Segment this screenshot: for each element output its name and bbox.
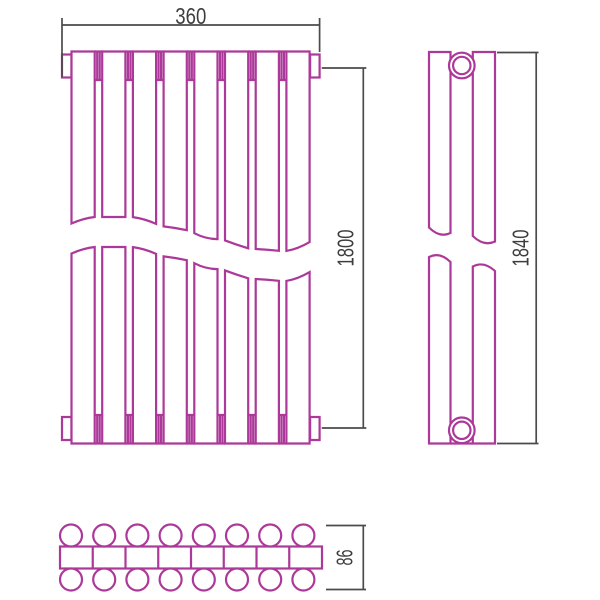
collector-joint [248, 52, 256, 444]
front-tube-upper [225, 52, 248, 249]
collector-end-tab [62, 55, 72, 78]
side-tube-lower [429, 255, 451, 443]
plan-tube-circle [160, 525, 182, 547]
front-tube-lower [164, 256, 187, 443]
front-tube-upper [256, 52, 279, 251]
dim-depth: 86 [326, 526, 366, 590]
plan-tube-circle [226, 569, 248, 591]
front-tube-upper [286, 52, 309, 251]
plan-tube-circle [292, 569, 314, 591]
plan-view [60, 525, 322, 591]
dim-depth-value: 86 [332, 550, 358, 566]
plan-tube-circle [259, 525, 281, 547]
front-tube-lower [133, 247, 156, 443]
collector-end-tab [310, 417, 320, 440]
dim-front-height: 1800 [322, 68, 367, 428]
front-tube-upper [164, 52, 187, 231]
front-tube-upper [72, 52, 95, 224]
front-tube-lower [194, 263, 217, 443]
dim-side-height-value: 1840 [508, 230, 534, 267]
front-tube-upper [102, 52, 125, 218]
side-view [429, 52, 495, 444]
front-tube-lower [72, 247, 95, 443]
front-tube-lower [225, 270, 248, 443]
front-tube-upper [133, 52, 156, 224]
side-tube-upper [473, 52, 495, 243]
plan-tube-circle [60, 569, 82, 591]
drawing-canvas: 360 1800 1840 86 [0, 0, 600, 600]
plan-tube-circle [93, 525, 115, 547]
plan-tube-circle [160, 569, 182, 591]
plan-tube-circle [126, 569, 148, 591]
radiator-drawing-svg: 360 1800 1840 86 [0, 0, 600, 600]
plan-tube-circle [292, 525, 314, 547]
front-tube-lower [286, 272, 309, 443]
collector-joint [187, 52, 195, 444]
plan-tube-circle [193, 525, 215, 547]
plan-tube-circle [193, 569, 215, 591]
plan-tube-circle [259, 569, 281, 591]
collector-joint [125, 52, 132, 444]
collector-joint [156, 52, 164, 444]
dim-front-width-value: 360 [175, 3, 206, 29]
collector-joint [279, 52, 287, 444]
plan-tube-circle [60, 525, 82, 547]
collector-end-tab [310, 55, 320, 78]
front-view [62, 52, 320, 444]
dim-front-height-value: 1800 [333, 230, 359, 267]
front-tube-lower [102, 247, 125, 444]
dim-side-height: 1840 [497, 53, 539, 444]
plan-tube-circle [126, 525, 148, 547]
side-tube-upper [429, 52, 451, 235]
collector-joint [218, 52, 226, 444]
plan-tube-circle [226, 525, 248, 547]
front-tube-lower [256, 279, 279, 443]
plan-tube-circle [93, 569, 115, 591]
side-tube-lower [473, 264, 495, 443]
collector-end-tab [62, 417, 72, 440]
front-tube-upper [194, 52, 217, 240]
collector-joint [95, 52, 103, 444]
